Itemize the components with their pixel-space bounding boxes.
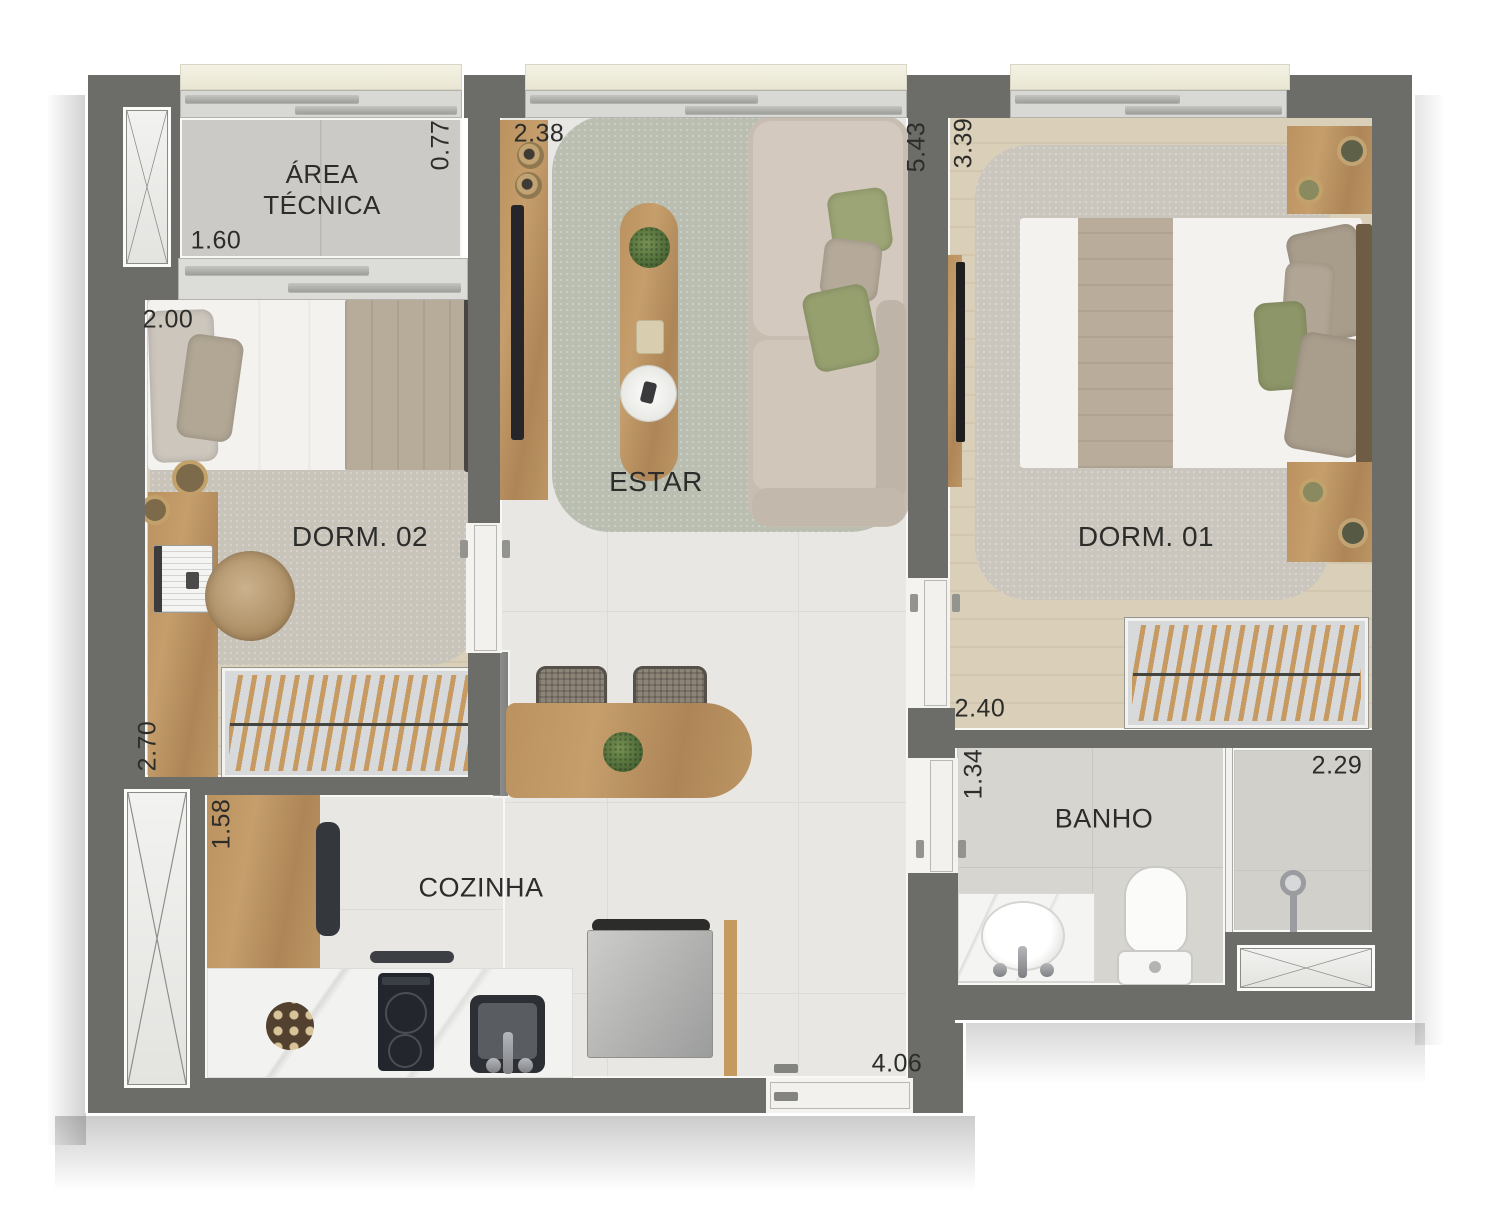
wardrobe-dorm02 (222, 668, 488, 778)
burner (385, 992, 427, 1034)
cooktop-controls (382, 977, 430, 985)
wardrobe-dorm01 (1125, 618, 1368, 728)
dim-banho-depth: 1.34 (960, 749, 989, 800)
stool-icon (1338, 518, 1368, 548)
door-handle (916, 840, 924, 858)
wall (905, 75, 1013, 118)
table-cushion (636, 320, 664, 354)
wall (88, 1078, 766, 1113)
decor-bowl-icon (1295, 176, 1323, 204)
tv-icon (956, 262, 965, 442)
plant-icon (603, 732, 643, 772)
room-label-dorm02: DORM. 02 (292, 521, 428, 553)
dim-dorm02-depth: 2.70 (134, 721, 163, 772)
room-label-line: TÉCNICA (263, 190, 381, 221)
faucet-knob (993, 963, 1007, 977)
sofa-arm (752, 488, 905, 526)
duct-shaft (127, 792, 187, 1085)
faucet-icon (503, 1032, 513, 1074)
wall (88, 295, 145, 785)
dim-area-tecnica-width: 1.60 (191, 227, 242, 256)
stool-icon (1337, 136, 1367, 166)
room-label-estar: ESTAR (609, 466, 703, 498)
wall (955, 985, 1412, 1020)
window-sill (180, 64, 462, 90)
room-label-line: ÁREA (263, 159, 381, 190)
dim-area-tecnica-depth: 0.77 (427, 120, 456, 171)
door-handle (952, 594, 960, 612)
window-rail (185, 95, 359, 103)
bed-blanket (345, 300, 465, 470)
faucet-knob (1040, 963, 1054, 977)
window-rail (685, 106, 902, 114)
wardrobe-rail (230, 723, 480, 726)
shower-pipe (1290, 893, 1297, 935)
wall (1287, 75, 1412, 118)
dim-dorm02-width: 2.00 (143, 306, 194, 335)
dim-banho-width: 2.29 (1312, 752, 1363, 781)
wardrobe-rail (1133, 673, 1360, 676)
shadow-bottom-right (955, 1023, 1425, 1085)
window-sill (1010, 64, 1290, 90)
wall (908, 873, 958, 1020)
window-rail (295, 106, 457, 114)
window-rail (1015, 95, 1180, 103)
towel-rail (370, 951, 454, 963)
window-rail (185, 266, 369, 275)
room-label-dorm01: DORM. 01 (1078, 521, 1214, 553)
door-handle (958, 840, 966, 858)
wall (468, 118, 500, 523)
plant-icon (629, 227, 670, 268)
desk-dorm01 (1287, 462, 1375, 562)
door-handle (460, 540, 468, 558)
door-dorm02 (474, 525, 497, 651)
door-handle (502, 540, 510, 558)
shower-divider (1225, 746, 1233, 934)
window-estar (525, 90, 907, 118)
faucet-knob (486, 1058, 501, 1073)
fridge (587, 930, 713, 1058)
dim-dorm01-depth: 3.39 (950, 118, 979, 169)
floor-plan: ÁREA TÉCNICA 0.77 1.60 2.38 5.43 ESTAR 2… (0, 0, 1500, 1212)
toilet-icon (1124, 866, 1188, 954)
shadow-right (1415, 95, 1445, 1045)
headboard (1356, 224, 1372, 464)
door-dorm01 (924, 580, 947, 706)
window-rail (288, 283, 461, 292)
dim-cozinha-depth: 1.58 (208, 799, 237, 850)
room-label-cozinha: COZINHA (419, 873, 544, 904)
tv-icon (511, 205, 524, 440)
window-sill (525, 64, 907, 90)
wall (464, 75, 528, 118)
desk-chair (205, 551, 295, 641)
wall (468, 653, 500, 795)
wall (1372, 112, 1412, 1020)
room-label-banho: BANHO (1055, 804, 1154, 835)
wall (908, 118, 948, 578)
door-bathroom (930, 760, 953, 872)
faucet-icon (1018, 946, 1027, 978)
door-handle (774, 1092, 798, 1101)
fruit-bowl-icon (266, 1002, 314, 1050)
wall (145, 777, 500, 795)
kitchen-appliance-column (316, 822, 340, 936)
decor-bowl-icon (172, 460, 208, 496)
bed-blanket (1078, 218, 1173, 468)
window-area-tecnica (180, 90, 462, 118)
room-label-area-tecnica: ÁREA TÉCNICA (263, 159, 381, 221)
decor-bowl-icon (1299, 478, 1327, 506)
dim-cozinha-width: 4.06 (872, 1050, 923, 1079)
wall (908, 730, 1372, 748)
sofa-backrest (876, 300, 906, 500)
shadow-bottom (55, 1116, 975, 1191)
shadow-left (46, 95, 86, 1145)
dim-estar-width: 2.38 (514, 120, 565, 149)
flush-button (1149, 961, 1161, 973)
faucet-knob (518, 1058, 533, 1073)
laptop-trackpad (186, 572, 199, 589)
window-dorm02 (178, 258, 468, 300)
pouf-icon (515, 172, 542, 199)
duct-shaft (126, 110, 168, 264)
side-panel (724, 920, 737, 1076)
dim-dorm01-width: 2.40 (955, 695, 1006, 724)
window-rail (1125, 106, 1282, 114)
door-handle (910, 594, 918, 612)
door-handle (774, 1064, 798, 1073)
burner (388, 1034, 422, 1068)
dim-estar-depth: 5.43 (903, 122, 932, 173)
duct-shaft (1240, 948, 1372, 988)
window-dorm01 (1010, 90, 1287, 118)
laptop-icon (153, 545, 213, 613)
window-rail (530, 95, 758, 103)
